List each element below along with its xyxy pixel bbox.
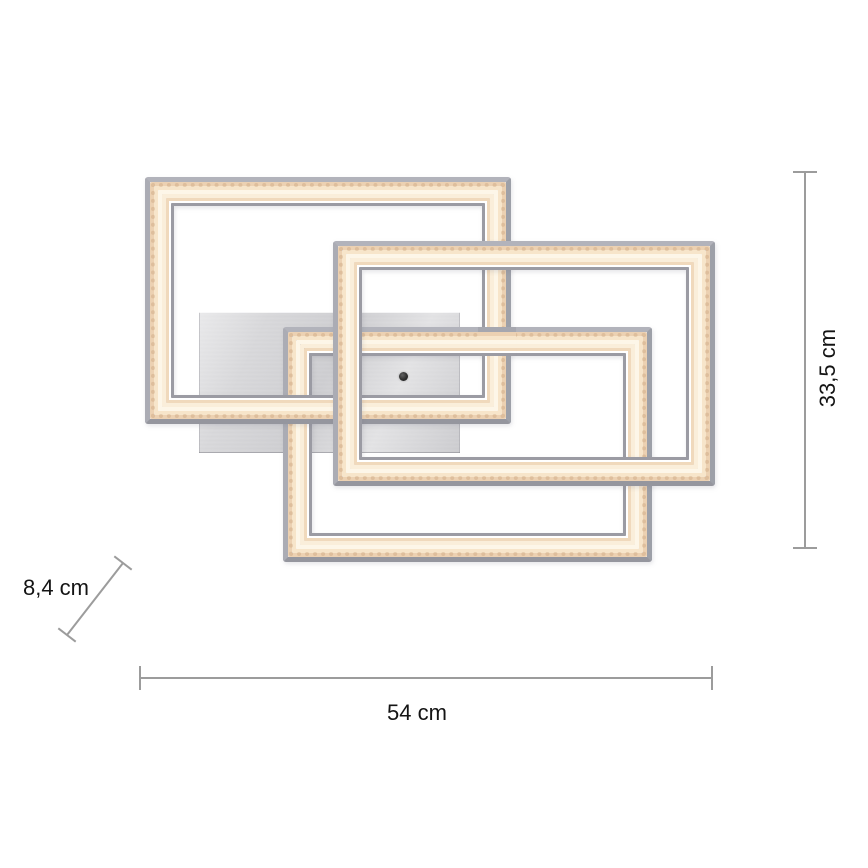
depth-dimension-label: 8,4 cm xyxy=(6,576,106,600)
product-dimension-diagram: 54 cm 33,5 cm 8,4 cm xyxy=(0,0,868,868)
width-dimension-label: 54 cm xyxy=(347,701,487,725)
dimension-lines xyxy=(0,0,868,868)
height-dimension-line xyxy=(793,172,817,548)
width-dimension-line xyxy=(140,666,712,690)
height-dimension-label: 33,5 cm xyxy=(816,308,840,428)
